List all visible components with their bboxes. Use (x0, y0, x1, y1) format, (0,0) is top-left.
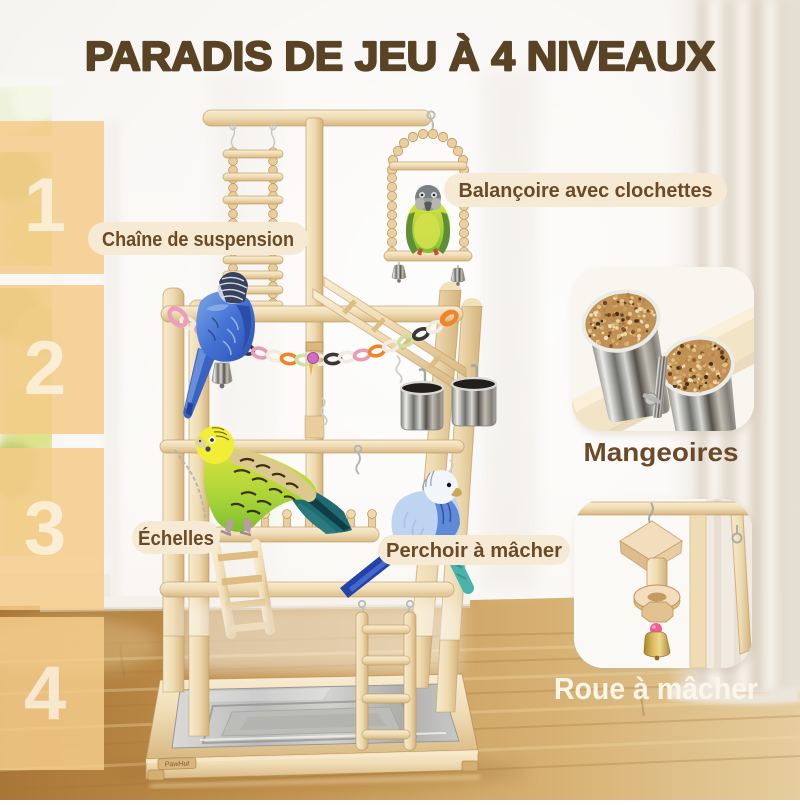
svg-text:1: 1 (24, 163, 66, 248)
svg-text:2: 2 (24, 326, 66, 411)
svg-text:Mangeoires: Mangeoires (584, 437, 739, 467)
svg-text:Balançoire avec clochettes: Balançoire avec clochettes (459, 179, 713, 202)
svg-text:PARADIS DE JEU À 4 NIVEAUX: PARADIS DE JEU À 4 NIVEAUX (85, 33, 715, 79)
svg-text:PawHut: PawHut (165, 761, 191, 769)
svg-text:4: 4 (24, 651, 66, 736)
svg-text:Échelles: Échelles (138, 527, 214, 550)
svg-text:3: 3 (24, 486, 66, 571)
svg-text:Chaîne de suspension: Chaîne de suspension (102, 228, 294, 251)
svg-text:Perchoir à mâcher: Perchoir à mâcher (386, 539, 562, 562)
svg-text:Roue à mâcher: Roue à mâcher (554, 671, 758, 706)
